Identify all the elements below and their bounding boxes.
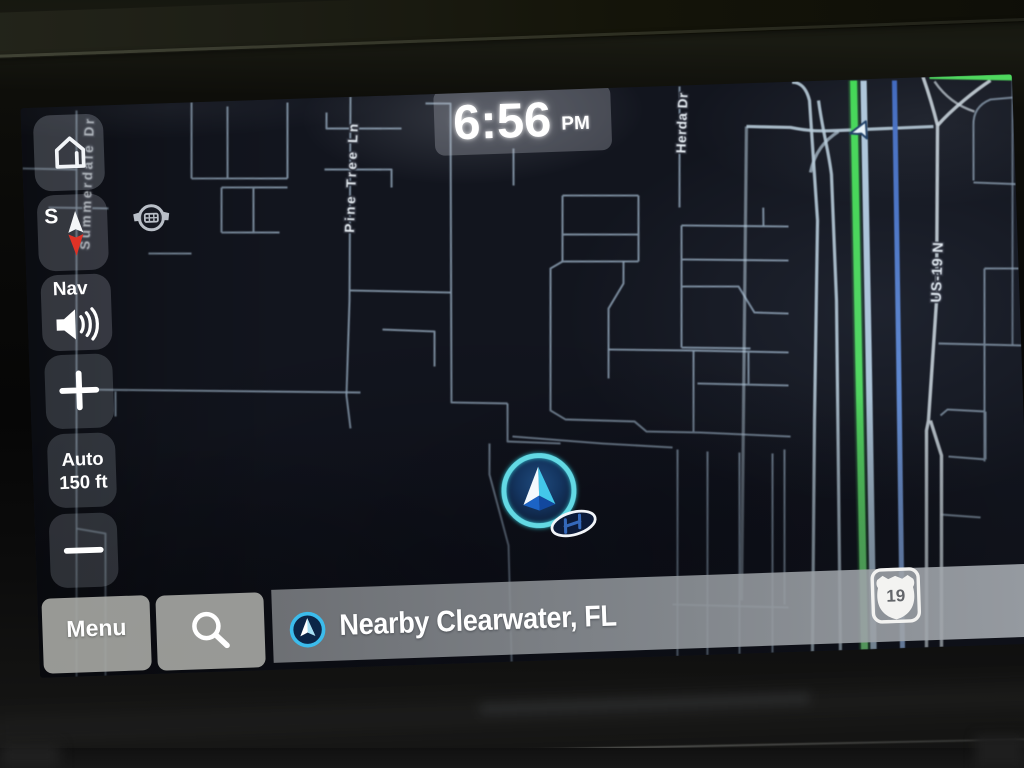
svg-text:19: 19 xyxy=(885,586,905,606)
